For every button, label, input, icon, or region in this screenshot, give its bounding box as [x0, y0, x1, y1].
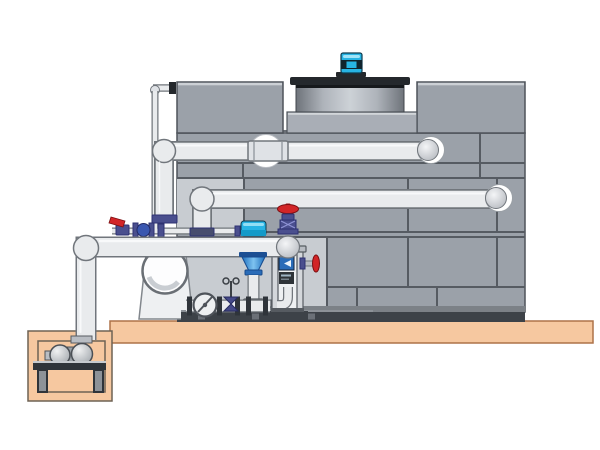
vertical-pump-motor: [241, 221, 266, 236]
fan-motor: [336, 53, 366, 77]
fan-cowl: [290, 77, 410, 112]
controller-label: [279, 272, 294, 284]
fan-deck-panel: [287, 112, 417, 133]
line-collar: [235, 226, 240, 236]
gate-valve-handwheel: [194, 294, 217, 317]
tower-top-right-box: [417, 82, 525, 133]
stub-collar: [169, 82, 176, 94]
riser-flange: [190, 228, 214, 236]
check-valve: [133, 223, 154, 237]
elbow-bulge: [153, 140, 176, 163]
cooling-tower: [153, 53, 525, 322]
tower-top-left-box: [177, 82, 283, 133]
elbow-dome-middle: [486, 188, 507, 209]
ground: [28, 321, 593, 401]
union-collar: [158, 224, 164, 237]
pipe-end-dome: [277, 236, 300, 258]
riser-collar: [71, 336, 92, 343]
drop-flange: [152, 215, 177, 223]
elbow-dome-upper: [418, 140, 439, 161]
cooling-tower-diagram: [0, 0, 600, 450]
diagram-page: [0, 0, 600, 450]
elbow-bulge: [74, 236, 99, 261]
elbow-bulge: [190, 187, 214, 211]
gauge-display: [279, 257, 294, 270]
floor-slab: [110, 321, 593, 343]
